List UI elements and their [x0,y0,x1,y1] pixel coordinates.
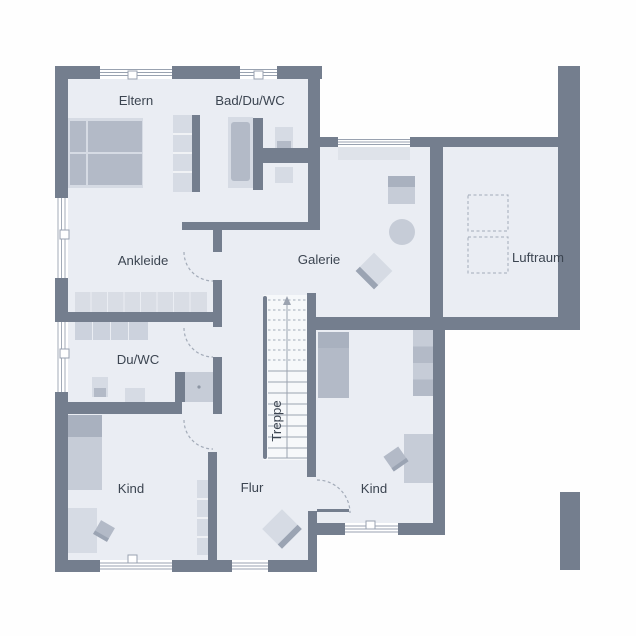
room-label-luftraum: Luftraum [512,250,564,265]
room-label-kind-left: Kind [118,481,144,496]
wall-kind-right-east [433,317,445,535]
stair-rail [263,296,267,459]
window-left-eltern [55,198,69,278]
window-bottom-kind-right [345,521,398,535]
sink-icon [92,377,108,397]
wall-hall-west-a [213,280,222,327]
floor-plan-page: Eltern Bad/Du/WC Ankleide Galerie Luftra… [0,0,636,636]
desk-with-chair-icon [388,176,415,204]
wall-stub-bath [192,115,200,192]
wall-flur-kind [208,452,217,562]
room-label-kind-right: Kind [361,481,387,496]
room-label-treppe: Treppe [269,400,284,441]
wall-galerie-luftraum [430,147,443,317]
wall-bath-counter [262,148,308,163]
wardrobe-icon [413,330,433,396]
double-bed-icon [68,118,143,188]
room-label-eltern: Eltern [119,93,153,108]
closet-row-bottom [75,322,148,340]
wall-stub-tub [253,118,263,190]
wall-ankleide-duwc [65,312,213,322]
wardrobe-icon [173,115,192,192]
wall-strip-south [315,317,580,330]
round-table-icon [389,219,415,245]
wall-ankleide-north [182,222,318,230]
desk-icon [68,508,97,553]
window-left-duwc [55,322,69,392]
wall-bottom-left [55,560,317,572]
wall-top [55,66,322,79]
window-top-eltern [100,66,172,79]
wall-duwc-south [62,402,182,414]
room-label-ankleide: Ankleide [118,253,169,268]
desk-icon [404,434,433,483]
window-galerie [338,137,410,160]
bed-icon [68,415,102,490]
wall-step-connector [308,511,317,572]
window-bottom-flur [232,560,268,572]
shower-icon [185,372,213,402]
window-top-bad [240,66,277,79]
wall-stub-southeast [560,492,580,570]
wall-door-jamb [213,230,222,252]
wall-right-outer [558,66,580,330]
floor-plan-drawing: Eltern Bad/Du/WC Ankleide Galerie Luftra… [0,0,636,636]
bathtub-icon [228,117,253,188]
bed-icon [318,332,349,398]
room-label-galerie: Galerie [298,252,341,267]
room-label-duwc: Du/WC [117,352,160,367]
room-floor-luftraum [443,147,558,318]
room-label-flur: Flur [241,480,264,495]
wall-stair-east [307,293,316,477]
wc-icon [125,388,145,402]
wall-hall-west-b [213,357,222,414]
wardrobe-icon [197,480,209,555]
closet-row-top [75,292,207,312]
wall-shower [175,372,185,402]
wc-icon [275,167,293,183]
sink-icon [275,127,293,148]
room-label-bad: Bad/Du/WC [215,93,285,108]
wall-block-right [308,66,320,230]
